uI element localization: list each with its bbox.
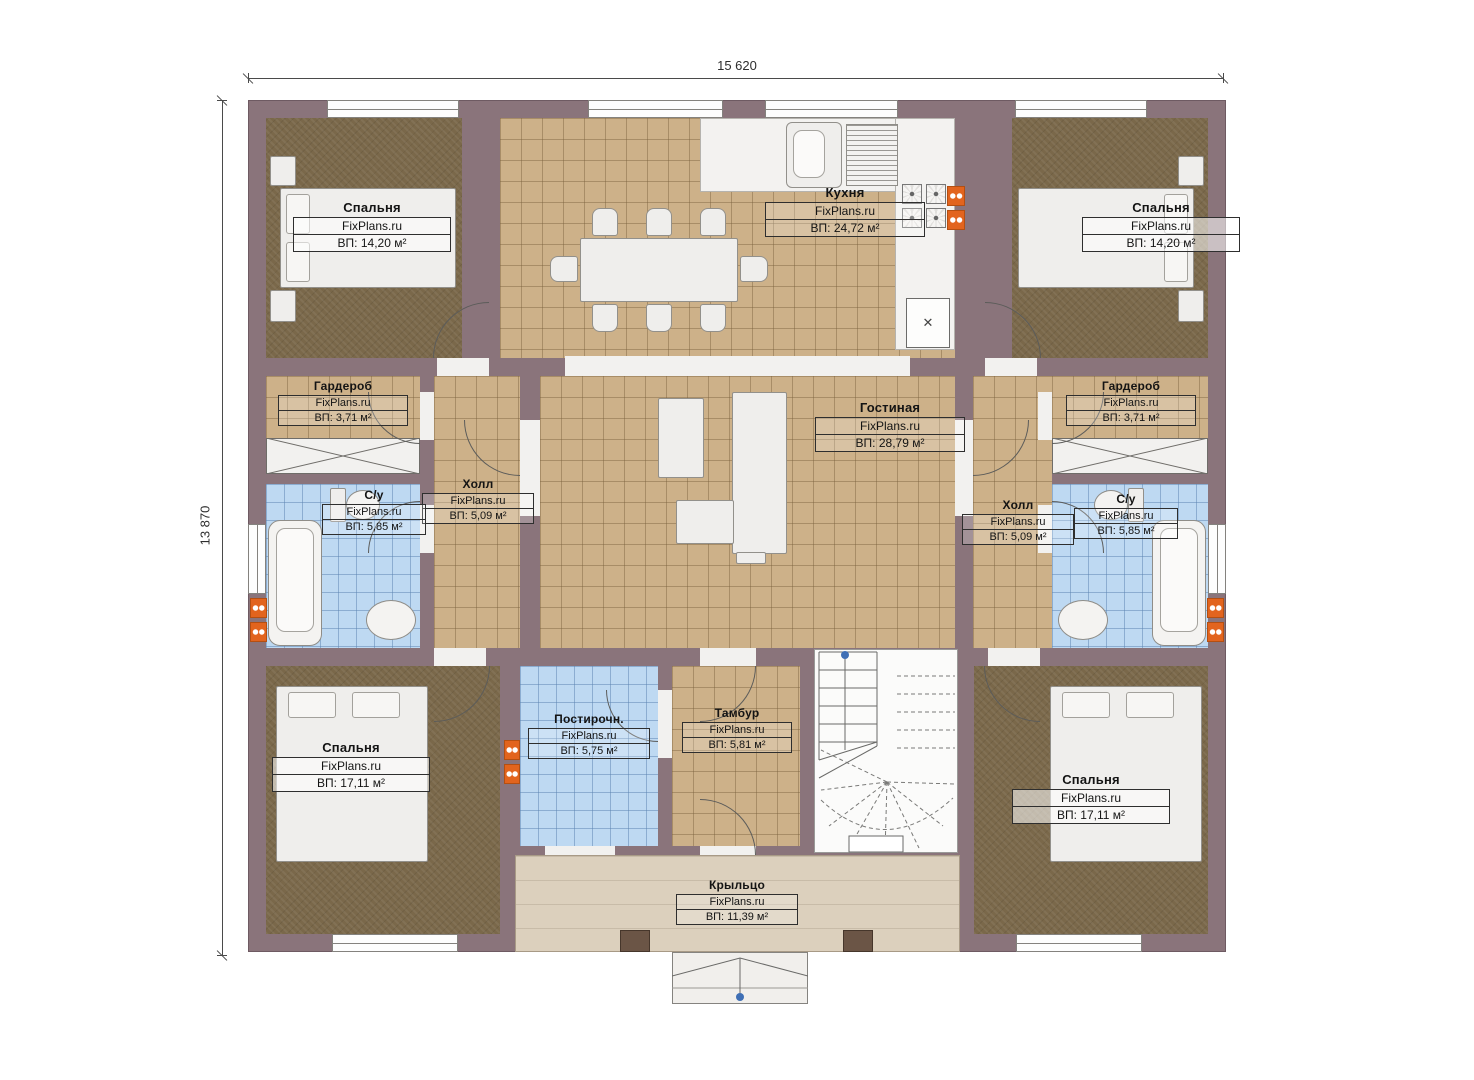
room-area: ВП: 5,81 м² [683,738,791,752]
window [1208,524,1226,594]
room-title: Спальня [1082,200,1240,215]
room-title: Спальня [272,740,430,755]
room-area: ВП: 24,72 м² [766,220,924,236]
window-porch [545,846,615,855]
sofa-ottoman [736,552,766,564]
room-brand: FixPlans.ru [766,203,924,220]
chair [592,304,618,332]
nightstand [270,156,296,186]
room-brand: FixPlans.ru [1067,396,1195,411]
door-opening [700,648,756,666]
room-brand: FixPlans.ru [423,494,533,509]
room-title: Кухня [765,185,925,200]
chair [646,208,672,236]
window [588,100,723,118]
window [248,524,266,594]
nightstand [270,290,296,322]
room-title: Холл [962,498,1074,512]
room-title: Постирочн. [528,712,650,726]
door-opening [437,358,489,376]
room-title: Тамбур [682,706,792,720]
stairs [814,649,958,853]
room-title: С/у [322,488,426,502]
porch-pillar [843,930,873,952]
door-opening [985,358,1037,376]
room-title: Гардероб [278,379,408,393]
label-porch: Крыльцо FixPlans.ru ВП: 11,39 м² [676,878,798,925]
door-opening [988,648,1040,666]
room-area: ВП: 5,09 м² [423,509,533,523]
label-wardrobe-l: Гардероб FixPlans.ru ВП: 3,71 м² [278,379,408,426]
pillow [1062,692,1110,718]
wall-opening-living [565,356,910,376]
radiator [947,210,965,230]
room-brand: FixPlans.ru [273,758,429,775]
room-title: Холл [422,477,534,491]
dimension-width: 15 620 [697,58,777,73]
window [1016,934,1142,952]
chair [700,304,726,332]
bathtub-inner [1160,528,1198,632]
dining-table [580,238,738,302]
room-area: ВП: 17,11 м² [273,775,429,791]
door-opening [420,392,434,440]
room-brand: FixPlans.ru [1075,509,1177,524]
closet-icon [266,438,420,474]
room-brand: FixPlans.ru [323,505,425,520]
window [765,100,898,118]
bathtub-inner [276,528,314,632]
label-hall-r: Холл FixPlans.ru ВП: 5,09 м² [962,498,1074,545]
room-brand: FixPlans.ru [963,515,1073,530]
chair [740,256,768,282]
door-opening [434,648,486,666]
radiator [1207,622,1224,642]
label-vestibule: Тамбур FixPlans.ru ВП: 5,81 м² [682,706,792,753]
room-brand: FixPlans.ru [279,396,407,411]
label-bedroom-bl: Спальня FixPlans.ru ВП: 17,11 м² [272,740,430,792]
room-area: ВП: 5,85 м² [1075,524,1177,538]
dimension-line-left [222,100,223,956]
window [327,100,459,118]
nightstand [1178,156,1204,186]
room-title: Спальня [1012,772,1170,787]
chair [646,304,672,332]
radiator [504,740,520,760]
window [1015,100,1147,118]
sofa-section [732,392,787,554]
label-bath-r: С/у FixPlans.ru ВП: 5,85 м² [1074,492,1178,539]
sink [366,600,416,640]
porch-pillar [620,930,650,952]
dimension-line-top [248,78,1224,79]
sink [1058,600,1108,640]
room-area: ВП: 5,85 м² [323,520,425,534]
room-title: Гостиная [815,400,965,415]
pillow [288,692,336,718]
dish-drainer [846,124,898,186]
chair [550,256,578,282]
room-area: ВП: 28,79 м² [816,435,964,451]
room-title: С/у [1074,492,1178,506]
coffee-table [658,398,704,478]
door-opening [658,690,672,758]
label-hall-l: Холл FixPlans.ru ВП: 5,09 м² [422,477,534,524]
kitchen-sink-basin [793,130,825,178]
room-area: ВП: 5,75 м² [529,744,649,758]
fridge-icon: ✕ [906,298,950,348]
chair [592,208,618,236]
room-area: ВП: 3,71 м² [1067,411,1195,425]
room-area: ВП: 17,11 м² [1013,807,1169,823]
sofa-section [676,500,734,544]
door-opening [1038,392,1052,440]
label-bedroom-br: Спальня FixPlans.ru ВП: 17,11 м² [1012,772,1170,824]
room-area: ВП: 14,20 м² [1083,235,1239,251]
label-kitchen: Кухня FixPlans.ru ВП: 24,72 м² [765,185,925,237]
label-bedroom-tr: Спальня FixPlans.ru ВП: 14,20 м² [1082,200,1240,252]
dimension-height: 13 870 [198,486,213,566]
radiator [504,764,520,784]
entrance-steps [672,952,808,1004]
room-brand: FixPlans.ru [294,218,450,235]
nightstand [1178,290,1204,322]
room-brand: FixPlans.ru [816,418,964,435]
room-title: Крыльцо [676,878,798,892]
pillow [352,692,400,718]
fridge-mark: ✕ [923,315,934,331]
label-bath-l: С/у FixPlans.ru ВП: 5,85 м² [322,488,426,535]
stove-burner [926,184,946,204]
room-brand: FixPlans.ru [1013,790,1169,807]
room-brand: FixPlans.ru [683,723,791,738]
label-living: Гостиная FixPlans.ru ВП: 28,79 м² [815,400,965,452]
room-brand: FixPlans.ru [529,729,649,744]
stove-burner [926,208,946,228]
floor-plan: 15 620 13 870 [0,0,1474,1080]
label-bedroom-tl: Спальня FixPlans.ru ВП: 14,20 м² [293,200,451,252]
radiator [947,186,965,206]
room-area: ВП: 14,20 м² [294,235,450,251]
room-title: Гардероб [1066,379,1196,393]
room-brand: FixPlans.ru [1083,218,1239,235]
pillow [1126,692,1174,718]
room-area: ВП: 5,09 м² [963,530,1073,544]
room-area: ВП: 3,71 м² [279,411,407,425]
chair [700,208,726,236]
radiator [250,598,267,618]
room-title: Спальня [293,200,451,215]
label-wardrobe-r: Гардероб FixPlans.ru ВП: 3,71 м² [1066,379,1196,426]
window [332,934,458,952]
label-laundry: Постирочн. FixPlans.ru ВП: 5,75 м² [528,712,650,759]
room-area: ВП: 11,39 м² [677,910,797,924]
radiator [250,622,267,642]
closet-icon [1052,438,1208,474]
room-brand: FixPlans.ru [677,895,797,910]
radiator [1207,598,1224,618]
